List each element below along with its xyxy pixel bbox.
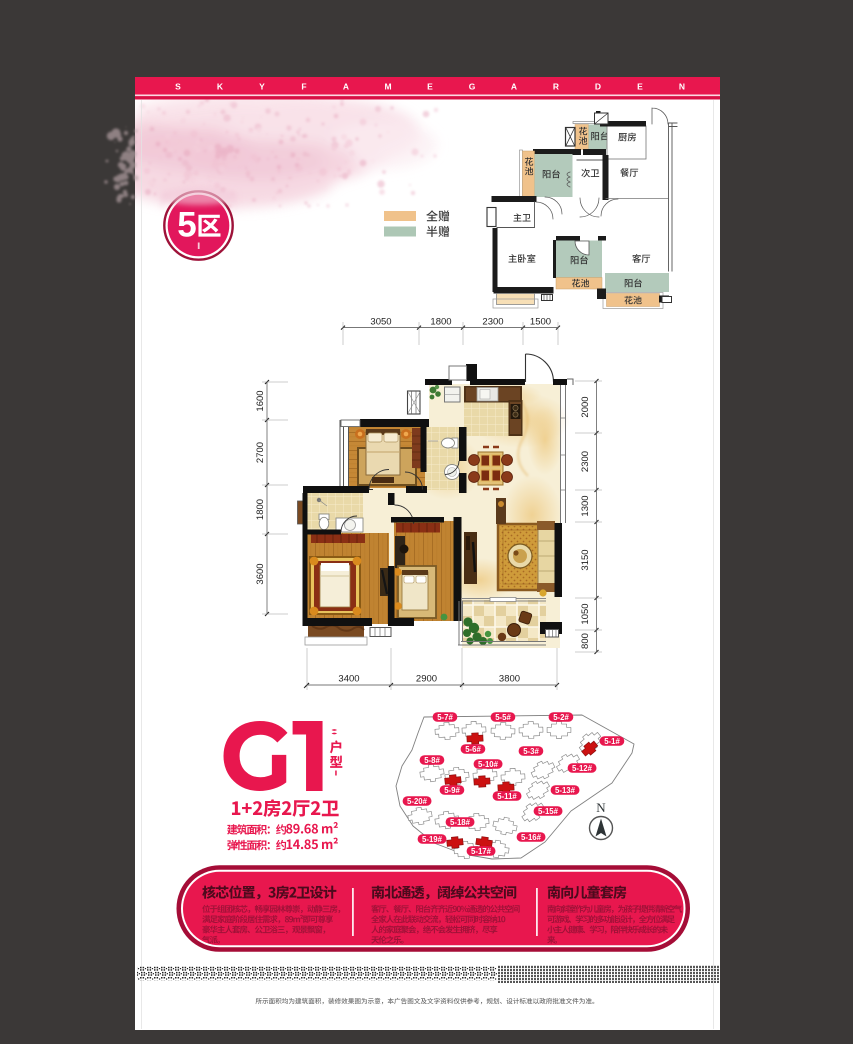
svg-text:5-12#: 5-12# — [572, 764, 593, 773]
svg-text:5-1#: 5-1# — [604, 737, 620, 746]
svg-text:R: R — [553, 82, 559, 92]
svg-text:5-17#: 5-17# — [471, 847, 492, 856]
svg-text:5-5#: 5-5# — [495, 713, 511, 722]
svg-text:5-9#: 5-9# — [444, 786, 460, 795]
svg-text:5-15#: 5-15# — [538, 807, 559, 816]
svg-text:800: 800 — [580, 633, 591, 649]
svg-text:5-7#: 5-7# — [437, 713, 453, 722]
svg-text:2300: 2300 — [580, 451, 591, 472]
svg-text:N: N — [596, 800, 606, 815]
svg-text:5-11#: 5-11# — [497, 792, 517, 801]
svg-text:5-3#: 5-3# — [523, 747, 539, 756]
svg-text:1300: 1300 — [580, 495, 591, 516]
svg-text:K: K — [217, 82, 224, 92]
svg-text:2900: 2900 — [416, 674, 437, 685]
svg-text:5-10#: 5-10# — [478, 760, 499, 769]
svg-text:3600: 3600 — [255, 563, 266, 584]
svg-text:Y: Y — [259, 82, 265, 92]
svg-text:5: 5 — [177, 206, 196, 245]
svg-text:3400: 3400 — [338, 674, 359, 685]
svg-text:5-8#: 5-8# — [424, 756, 440, 765]
svg-text:F: F — [301, 82, 306, 92]
svg-text:1600: 1600 — [255, 390, 266, 411]
svg-text:1800: 1800 — [430, 317, 451, 328]
svg-text:A: A — [511, 82, 517, 92]
svg-text:3150: 3150 — [580, 549, 591, 570]
svg-text:1800: 1800 — [255, 499, 266, 520]
svg-text:D: D — [595, 82, 601, 92]
svg-text:M: M — [384, 82, 391, 92]
svg-text:3050: 3050 — [370, 317, 391, 328]
svg-text:1500: 1500 — [530, 317, 551, 328]
svg-text:A: A — [343, 82, 349, 92]
svg-text:E: E — [637, 82, 643, 92]
svg-text:5-16#: 5-16# — [521, 833, 542, 842]
svg-text:5-20#: 5-20# — [407, 797, 428, 806]
svg-text:5-6#: 5-6# — [465, 745, 481, 754]
svg-text:2000: 2000 — [580, 396, 591, 417]
svg-text:G: G — [469, 82, 476, 92]
svg-text:1050: 1050 — [580, 603, 591, 624]
svg-text:2300: 2300 — [482, 317, 503, 328]
svg-text:E: E — [427, 82, 433, 92]
svg-text:N: N — [679, 82, 685, 92]
svg-text:5-19#: 5-19# — [422, 835, 443, 844]
svg-text:2700: 2700 — [255, 442, 266, 463]
svg-text:5-18#: 5-18# — [450, 818, 471, 827]
svg-text:5-13#: 5-13# — [555, 786, 576, 795]
svg-text:3800: 3800 — [499, 674, 520, 685]
svg-text:S: S — [175, 82, 181, 92]
svg-text:5-2#: 5-2# — [553, 713, 569, 722]
